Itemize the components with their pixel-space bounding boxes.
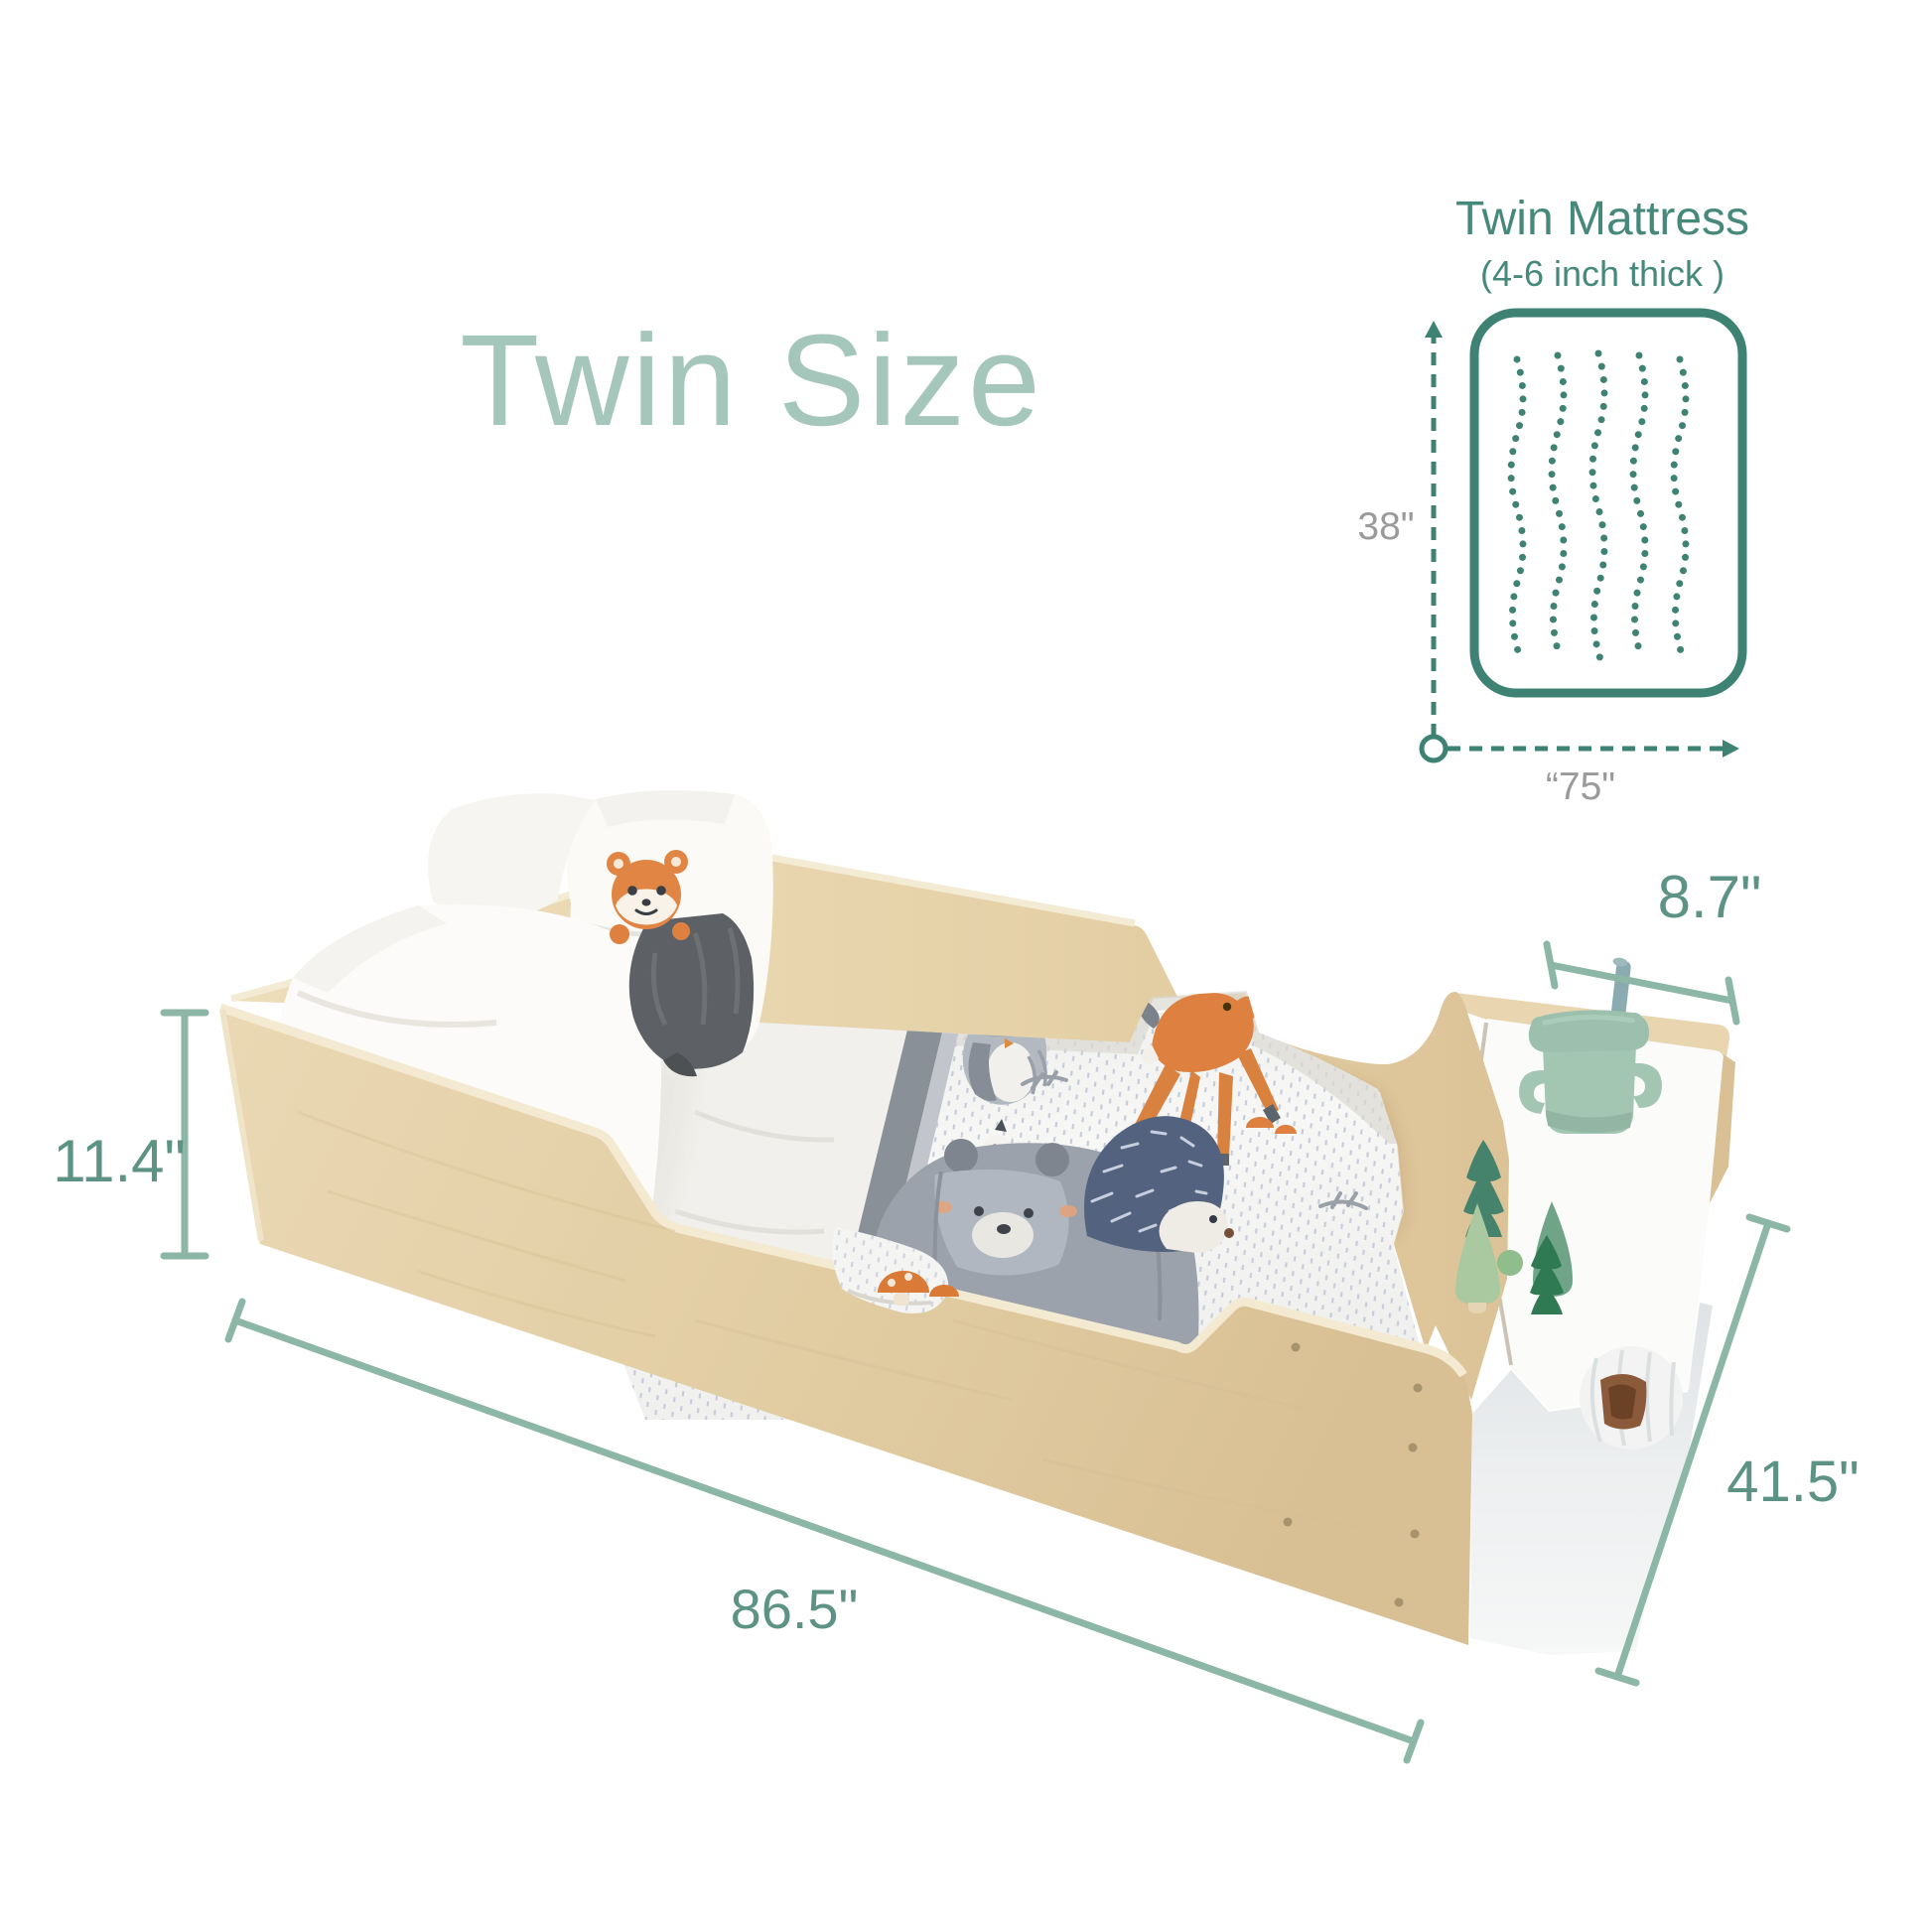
svg-text:8.7": 8.7" [1658,864,1762,930]
svg-text:41.5": 41.5" [1726,1449,1859,1514]
svg-text:Twin Mattress: Twin Mattress [1455,193,1749,245]
svg-text:86.5": 86.5" [731,1578,859,1640]
svg-text:(4-6 inch thick ): (4-6 inch thick ) [1480,253,1725,294]
svg-text:“75": “75" [1546,765,1615,808]
svg-text:11.4": 11.4" [53,1128,186,1194]
svg-text:Twin Size: Twin Size [460,307,1043,453]
svg-text:38": 38" [1357,505,1414,548]
